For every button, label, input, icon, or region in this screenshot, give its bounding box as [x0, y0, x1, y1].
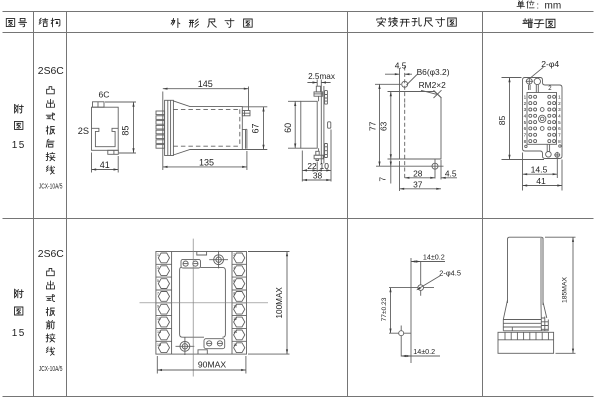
- svg-text:4: 4: [558, 114, 561, 119]
- svg-text:7: 7: [558, 133, 561, 138]
- svg-text:3: 3: [558, 107, 561, 112]
- svg-text:100MAX: 100MAX: [275, 287, 284, 319]
- svg-text:77: 77: [367, 121, 377, 131]
- svg-text:145: 145: [198, 79, 213, 89]
- svg-text:5: 5: [157, 279, 159, 283]
- svg-text:15: 15: [12, 328, 26, 339]
- svg-text:4: 4: [524, 114, 527, 119]
- svg-text:3: 3: [524, 107, 527, 112]
- svg-text:6: 6: [558, 126, 561, 131]
- svg-text:2S6C: 2S6C: [38, 66, 64, 77]
- svg-text:13: 13: [157, 330, 161, 334]
- svg-text:14±0.2: 14±0.2: [423, 253, 445, 262]
- svg-text:14±0.2: 14±0.2: [413, 347, 435, 356]
- svg-text:1: 1: [157, 253, 159, 257]
- svg-text:14.5: 14.5: [531, 165, 548, 175]
- svg-text:8: 8: [558, 139, 561, 144]
- svg-text:2: 2: [524, 101, 527, 106]
- svg-text:60: 60: [283, 123, 293, 133]
- svg-text:7: 7: [378, 176, 387, 181]
- svg-text:2.5max: 2.5max: [308, 72, 335, 81]
- svg-text:6: 6: [524, 126, 527, 131]
- svg-text:41: 41: [536, 176, 546, 186]
- svg-text:67: 67: [250, 123, 260, 133]
- svg-text:2-φ4: 2-φ4: [541, 59, 559, 69]
- svg-text:14: 14: [233, 330, 237, 334]
- svg-text:4.5: 4.5: [395, 60, 407, 70]
- svg-text:77±0.23: 77±0.23: [381, 297, 388, 321]
- svg-text:1: 1: [524, 95, 527, 100]
- svg-text:JCX-10A/5: JCX-10A/5: [39, 183, 63, 190]
- svg-text:15: 15: [157, 343, 161, 347]
- svg-text:4.5: 4.5: [445, 168, 457, 178]
- svg-text:85: 85: [497, 116, 507, 126]
- svg-text:4: 4: [233, 266, 235, 270]
- svg-text:38: 38: [313, 171, 323, 181]
- svg-text:41: 41: [100, 160, 110, 170]
- svg-text:16: 16: [233, 343, 237, 347]
- svg-text:11: 11: [157, 317, 161, 321]
- svg-text:37: 37: [413, 179, 423, 189]
- svg-text:3: 3: [157, 266, 159, 270]
- svg-text:RM2×2: RM2×2: [419, 80, 447, 90]
- svg-text:185MAX: 185MAX: [561, 277, 568, 304]
- svg-text:15: 15: [12, 140, 26, 151]
- svg-text:1: 1: [558, 95, 561, 100]
- svg-text:28: 28: [413, 168, 423, 178]
- svg-text::: :: [537, 0, 540, 10]
- svg-text:5: 5: [558, 120, 561, 125]
- svg-text:63: 63: [379, 121, 389, 131]
- svg-text:90MAX: 90MAX: [198, 360, 226, 370]
- svg-text:2: 2: [558, 101, 561, 106]
- svg-text:6: 6: [233, 279, 235, 283]
- svg-text:JCX-10A/5: JCX-10A/5: [39, 366, 63, 373]
- svg-text:10: 10: [320, 161, 330, 171]
- svg-text:7: 7: [524, 133, 527, 138]
- svg-text:10: 10: [233, 304, 237, 308]
- svg-text:2: 2: [233, 253, 235, 257]
- svg-text:B6(φ3.2): B6(φ3.2): [417, 67, 450, 77]
- svg-text:22: 22: [307, 161, 317, 171]
- svg-text:12: 12: [233, 317, 237, 321]
- svg-text:135: 135: [199, 157, 214, 167]
- svg-text:8: 8: [233, 292, 235, 296]
- svg-text:8: 8: [524, 139, 527, 144]
- svg-text:2-φ4.5: 2-φ4.5: [439, 268, 461, 277]
- svg-text:mm: mm: [545, 1, 562, 12]
- svg-text:7: 7: [157, 292, 159, 296]
- svg-text:2S6C: 2S6C: [38, 249, 64, 260]
- svg-text:85: 85: [121, 126, 131, 136]
- svg-text:2S: 2S: [78, 126, 89, 136]
- svg-text:6C: 6C: [99, 89, 110, 99]
- svg-text:9: 9: [157, 304, 159, 308]
- svg-text:2: 2: [548, 86, 552, 92]
- svg-text:5: 5: [524, 120, 527, 125]
